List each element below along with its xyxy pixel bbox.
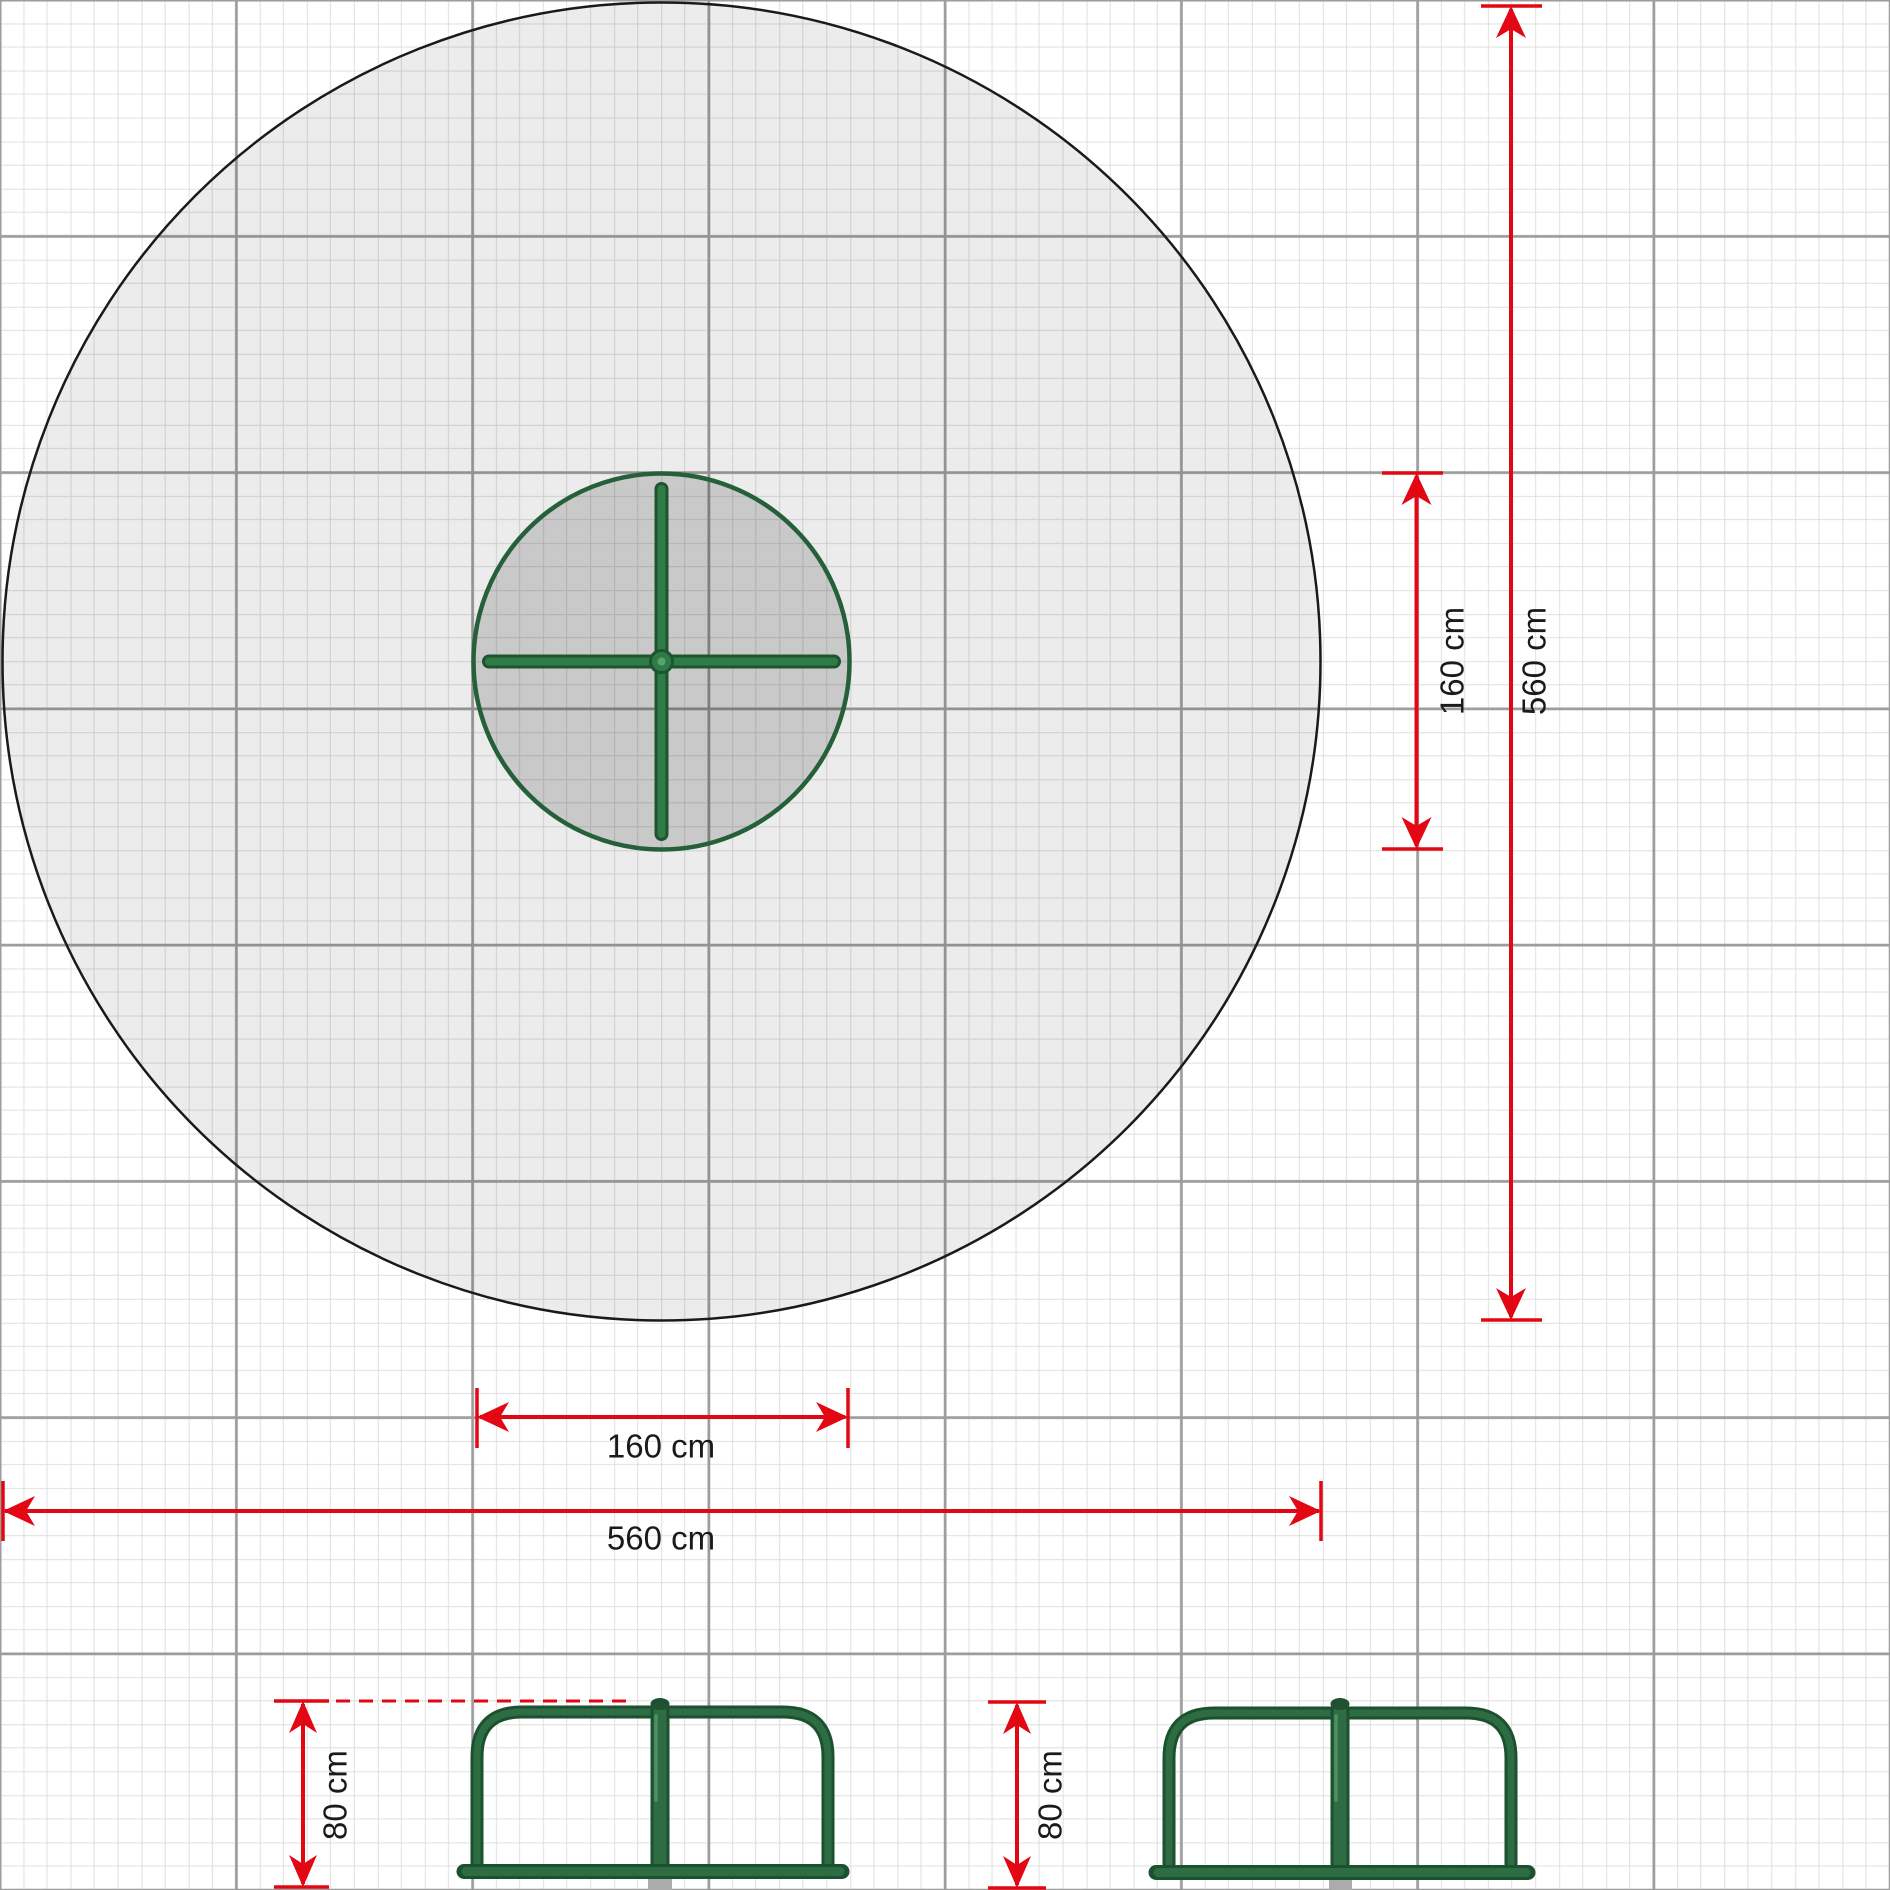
label-equipment-width: 160 cm (607, 1430, 715, 1463)
label-zone-width: 560 cm (607, 1522, 715, 1555)
post-cap (651, 1698, 670, 1710)
label-zone-height: 560 cm (1518, 607, 1551, 715)
drawing-layer (0, 0, 1890, 1890)
label-right-rail-height: 80 cm (1034, 1750, 1067, 1840)
carousel-side-view-right (1156, 1698, 1528, 1890)
carousel-side-view-left (464, 1698, 842, 1890)
label-equipment-height: 160 cm (1436, 607, 1469, 715)
label-left-rail-height: 80 cm (319, 1750, 352, 1840)
post-cap (1331, 1698, 1350, 1710)
plan-drawing-canvas: 160 cm 560 cm 160 cm 560 cm 80 cm 80 cm (0, 0, 1890, 1890)
